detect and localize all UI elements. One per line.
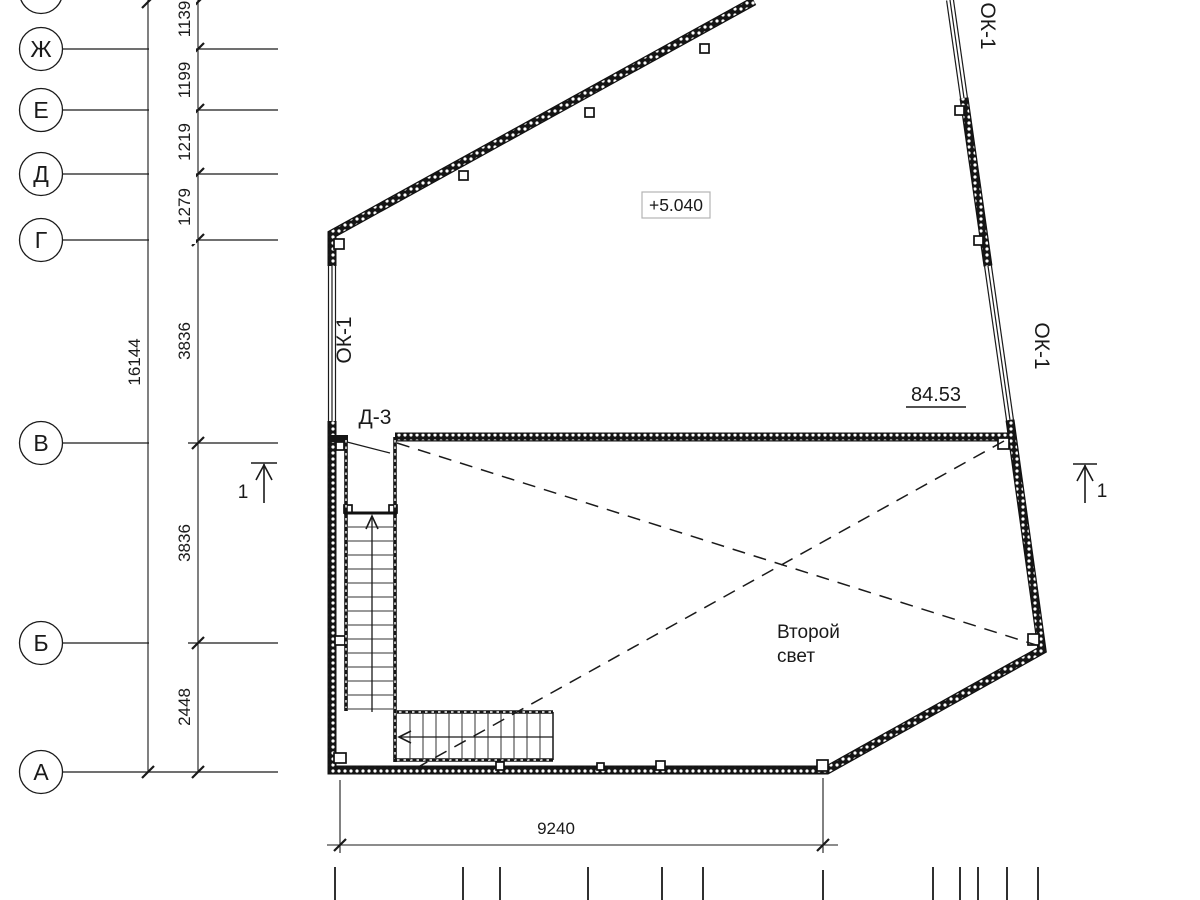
axis-label: В [33, 430, 48, 456]
door-mark-label: Д-3 [359, 406, 392, 429]
area-value-label: 84.53 [911, 384, 961, 406]
dim-text-masks [166, 0, 196, 744]
dim-value: 1279 [175, 188, 194, 226]
axis-label: А [33, 759, 49, 785]
bottom-dimension [327, 778, 838, 853]
void-cross-lines [397, 441, 1036, 766]
dim-value: 3836 [175, 524, 194, 562]
axis-label: Б [33, 630, 48, 656]
dim-value: 1199 [175, 62, 194, 99]
window-mark-top-right: ОК-1 [976, 2, 999, 49]
staircase [329, 437, 553, 762]
axis-bubbles [20, 28, 63, 794]
section-number-left: 1 [238, 482, 249, 503]
stair-partition-walls [329, 437, 553, 762]
floor-plan-drawing: Ж Е Д Г В Б А 1139 [0, 0, 1200, 900]
axis-bubble-partial [20, 0, 63, 14]
lower-extension-ticks [335, 867, 1038, 900]
wall-top [332, 1, 754, 266]
overall-dim-value: 16144 [125, 338, 144, 385]
bottom-dim-value: 9240 [537, 819, 575, 838]
stair-treads-vertical-flight [348, 527, 393, 709]
axis-label: Г [35, 227, 48, 253]
axis-label: Д [33, 161, 49, 187]
section-mark-left [251, 463, 277, 503]
window-right-top [947, 0, 968, 99]
window-mark-right: ОК-1 [1030, 322, 1053, 369]
dim-value: 2448 [175, 688, 194, 726]
void-label-line1: Второй [777, 622, 840, 643]
dim-value: 1139 [175, 1, 194, 38]
window-mark-left: ОК-1 [333, 316, 356, 363]
section-mark-right [1073, 464, 1097, 503]
axis-letters: Ж Е Д Г В Б А [30, 36, 51, 785]
axis-grid [20, 0, 279, 794]
plan-canvas: Ж Е Д Г В Б А 1139 [0, 0, 1200, 900]
void-label-line2: свет [777, 646, 815, 667]
axis-label: Ж [30, 36, 51, 62]
dim-value: 3836 [175, 322, 194, 360]
window-right-mid [985, 266, 1014, 421]
elevation-label: +5.040 [649, 195, 703, 215]
door-leaf [347, 442, 390, 453]
wall-fill [332, 420, 1042, 770]
wall-left-bottom-right [332, 420, 1042, 770]
axis-label: Е [33, 97, 48, 123]
section-number-right: 1 [1097, 481, 1108, 502]
dim-value: 1219 [175, 123, 194, 161]
